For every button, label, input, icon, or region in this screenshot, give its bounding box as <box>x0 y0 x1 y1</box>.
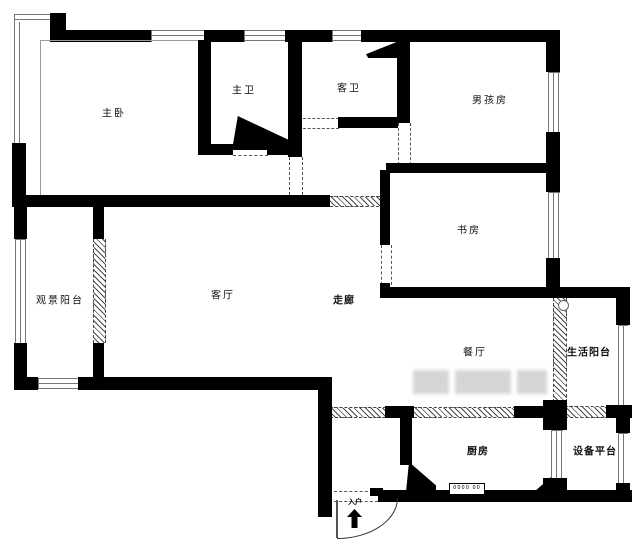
room-label-study: 书房 <box>457 226 481 237</box>
room-label-master-bathroom: 主卫 <box>232 86 256 97</box>
wall <box>14 377 38 390</box>
hatched-wall <box>93 239 106 343</box>
wall <box>12 195 330 207</box>
door-leaf-icon <box>406 462 436 492</box>
wall <box>93 203 104 239</box>
room-label-boys-room: 男孩房 <box>472 96 508 107</box>
room-label-corridor: 走廊 <box>333 296 355 307</box>
wall <box>397 33 410 123</box>
door-opening <box>289 157 303 195</box>
hatched-wall <box>553 298 567 407</box>
room-label-life-balcony: 生活阳台 <box>567 348 611 359</box>
window <box>332 30 364 42</box>
wall <box>14 207 27 239</box>
wall <box>380 170 390 245</box>
wall <box>361 30 560 42</box>
room-label-entry: 入户 <box>348 499 362 507</box>
room-label-living-room: 客厅 <box>211 291 235 302</box>
wall <box>386 163 556 173</box>
window <box>15 239 26 345</box>
room-label-guest-bathroom: 客卫 <box>337 84 361 95</box>
wall <box>93 343 104 378</box>
inner-wall-line <box>40 40 200 41</box>
wall <box>380 287 630 298</box>
window <box>244 30 288 42</box>
bay-window-left <box>14 14 22 150</box>
window <box>618 325 628 407</box>
window <box>548 72 560 134</box>
door-opening <box>398 123 411 165</box>
door-swing-arc <box>337 498 398 539</box>
window <box>548 192 560 260</box>
window <box>618 433 628 485</box>
watermark <box>413 366 553 396</box>
wall <box>400 416 412 465</box>
door-leaf-icon <box>232 116 290 150</box>
room-label-dining-room: 餐厅 <box>463 348 487 359</box>
wall <box>616 405 630 433</box>
stove-icon: 0000 00 <box>449 483 485 495</box>
wall <box>616 287 630 325</box>
door-opening <box>303 118 339 129</box>
wall <box>198 40 211 150</box>
hatched-wall <box>565 406 609 418</box>
door-opening <box>381 245 392 285</box>
drain-symbol-icon <box>558 300 569 311</box>
wall <box>546 30 560 72</box>
wall <box>288 40 302 157</box>
hatched-wall <box>414 407 516 418</box>
inner-wall-line <box>40 40 41 196</box>
wall <box>338 117 399 128</box>
room-label-equipment-platform: 设备平台 <box>573 447 617 458</box>
room-label-kitchen: 厨房 <box>467 447 489 458</box>
wall <box>514 406 546 418</box>
room-label-master-bedroom: 主卧 <box>102 109 126 120</box>
wall <box>78 377 330 390</box>
wall <box>318 377 332 517</box>
hatched-wall <box>330 407 386 418</box>
wall <box>543 400 567 430</box>
hatched-wall <box>330 196 384 207</box>
door-stop <box>370 488 383 496</box>
wall <box>546 132 560 192</box>
wall <box>378 490 632 502</box>
floor-plan: 0000 00 主卧 主卫 客卫 男孩房 书房 观景阳台 客厅 走廊 餐厅 生活… <box>0 0 644 541</box>
window <box>38 378 80 389</box>
room-label-view-balcony: 观景阳台 <box>36 296 84 307</box>
wall <box>198 144 234 155</box>
